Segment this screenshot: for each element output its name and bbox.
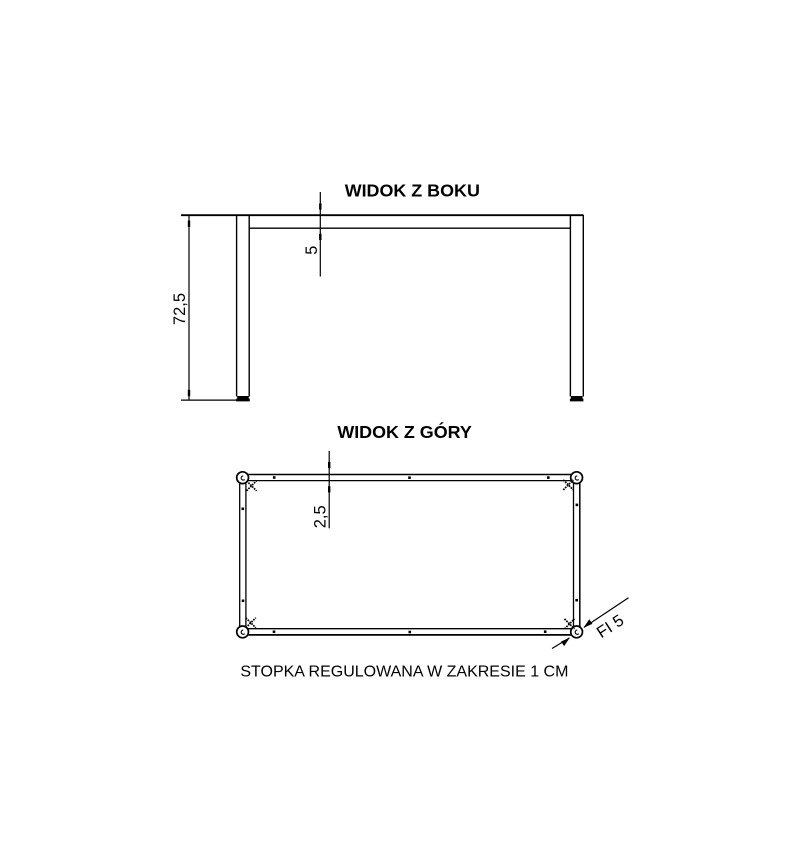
svg-text:72,5: 72,5 (171, 293, 189, 325)
svg-text:WIDOK Z GÓRY: WIDOK Z GÓRY (337, 421, 472, 442)
svg-text:STOPKA REGULOWANA W ZAKRESIE 1: STOPKA REGULOWANA W ZAKRESIE 1 CM (240, 664, 568, 681)
svg-text:2,5: 2,5 (312, 505, 330, 528)
svg-text:WIDOK Z BOKU: WIDOK Z BOKU (345, 180, 480, 200)
svg-text:5: 5 (303, 246, 321, 255)
